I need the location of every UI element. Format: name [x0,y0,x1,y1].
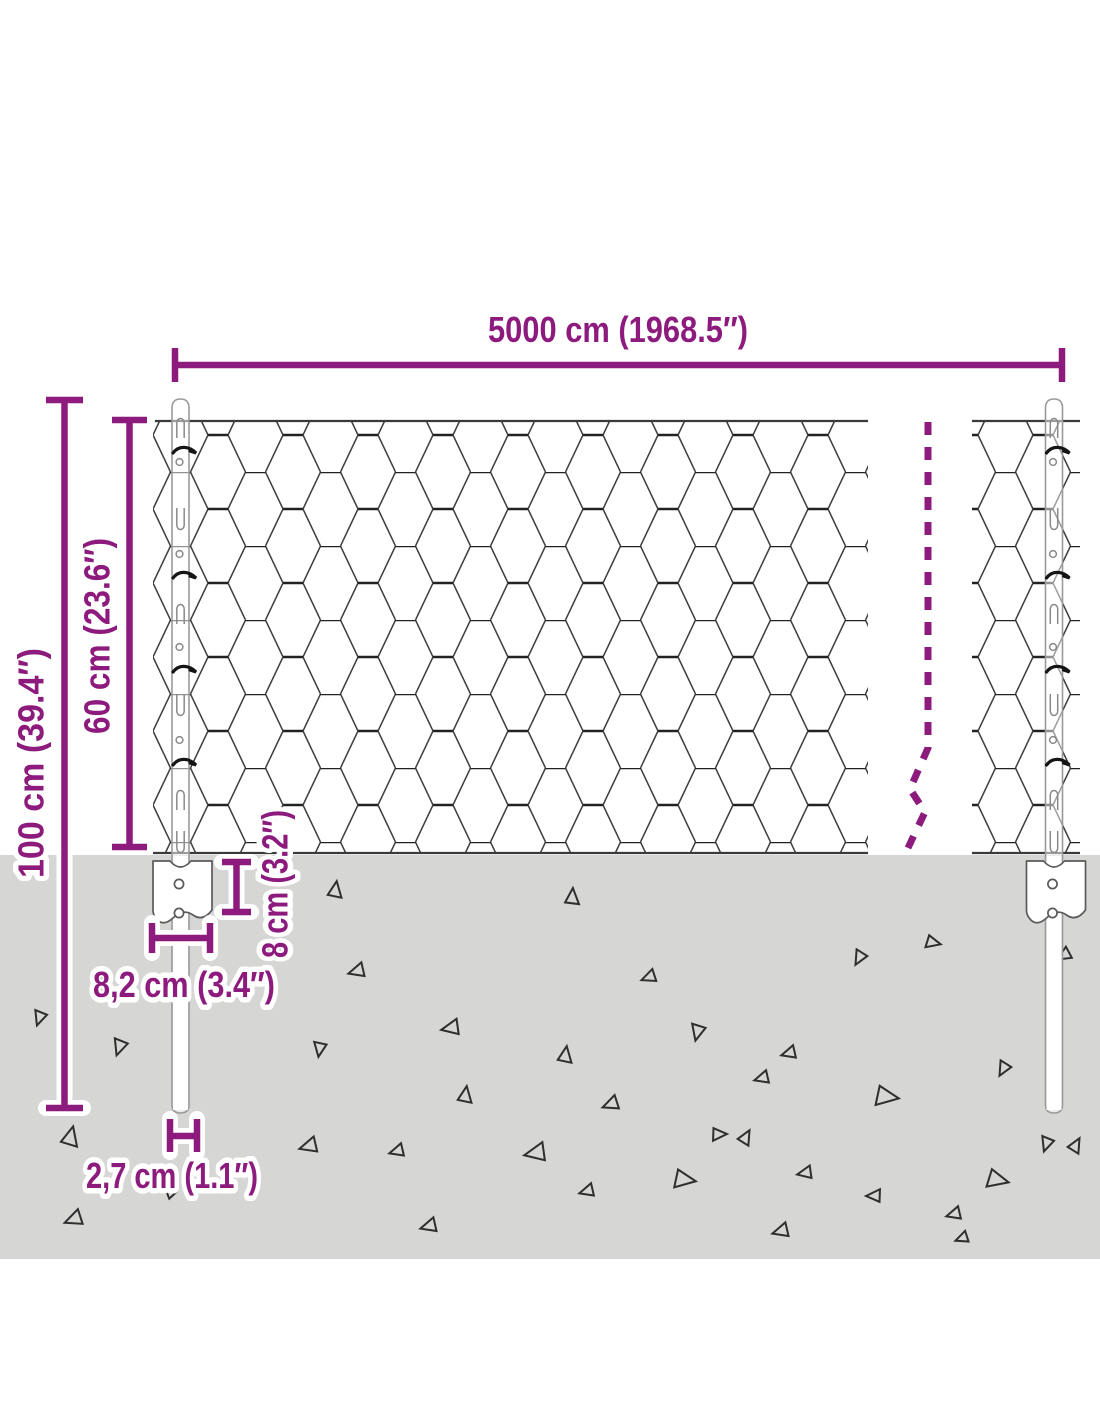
break-line [907,422,928,850]
product-dimension-diagram: 5000 cm (1968.5″) 100 cm (39.4″) 60 cm (… [0,0,1100,1422]
label-anchor-depth: 8 cm (3.2″) [255,810,296,958]
label-post-width: 2,7 cm (1.1″) [86,1155,258,1196]
label-post-height: 100 cm (39.4″) [11,648,52,878]
label-fence-height: 60 cm (23.6″) [77,538,118,734]
dim-total-length-line [175,348,1062,382]
label-anchor-width: 8,2 cm (3.4″) [93,964,275,1005]
fence-mesh-left [153,421,868,853]
fence-mesh-right [972,421,1080,853]
ground-anchor-left [153,861,212,923]
ground-anchor-right [1027,861,1086,923]
label-total-length: 5000 cm (1968.5″) [488,309,748,350]
